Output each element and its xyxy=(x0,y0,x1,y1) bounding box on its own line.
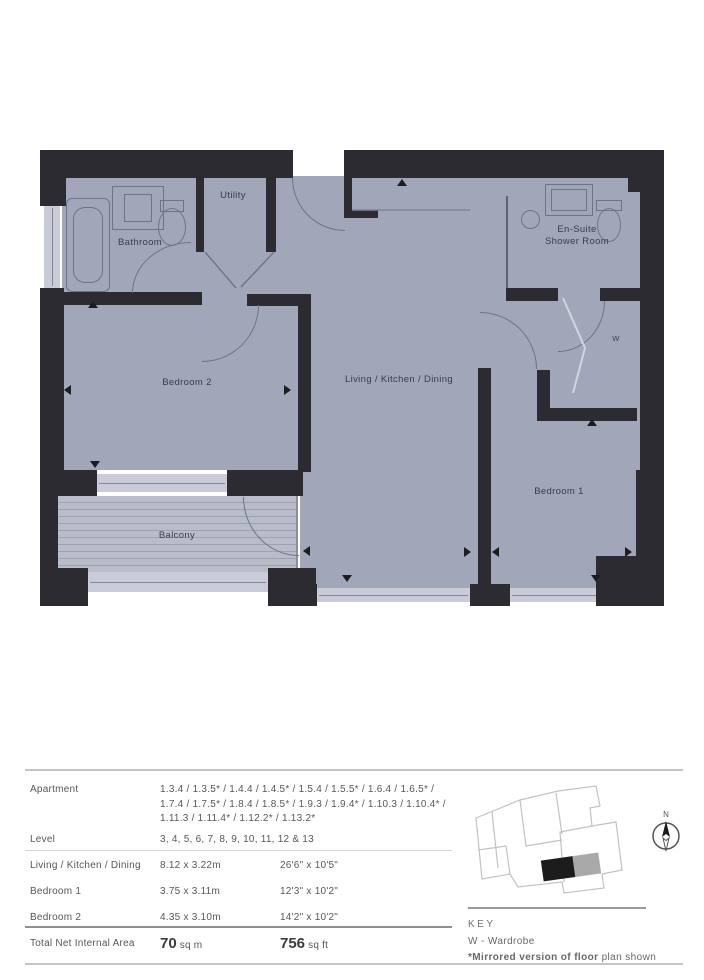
row-metric-bedroom1: 3.75 x 3.11m xyxy=(160,885,275,900)
dimension-arrow-icon xyxy=(397,179,407,186)
dimension-arrow-icon xyxy=(303,546,310,556)
room-label-utility: Utility xyxy=(220,190,246,202)
room-label-ensuite-2: Shower Room xyxy=(545,236,609,248)
row-label-apartment: Apartment xyxy=(30,783,155,798)
room-label-living: Living / Kitchen / Dining xyxy=(345,374,453,386)
dimension-arrow-icon xyxy=(464,547,471,557)
room-label-balcony: Balcony xyxy=(159,530,195,542)
total-label: Total Net Internal Area xyxy=(30,937,165,952)
wardrobe-doors-icon xyxy=(563,298,585,393)
row-metric-bedroom2: 4.35 x 3.10m xyxy=(160,911,275,926)
row-metric-living: 8.12 x 3.22m xyxy=(160,859,275,874)
dimension-arrow-icon xyxy=(625,547,632,557)
total-imperial-unit: sq ft xyxy=(308,940,328,951)
dimension-arrow-icon xyxy=(90,461,100,468)
row-label-bedroom1: Bedroom 1 xyxy=(30,885,155,900)
total-imperial: 756 sq ft xyxy=(280,933,430,955)
dimension-arrow-icon xyxy=(587,419,597,426)
key-wardrobe-entry: W - Wardrobe xyxy=(468,936,535,947)
row-value-apartment: 1.3.4 / 1.3.5* / 1.4.4 / 1.4.5* / 1.5.4 … xyxy=(160,783,450,827)
floorplan-page: Bathroom Utility Bedroom 2 Living / Kitc… xyxy=(0,0,704,980)
table-rule xyxy=(25,926,452,928)
row-label-level: Level xyxy=(30,833,155,848)
key-mirrored-note: *Mirrored version of floor plan shown xyxy=(468,952,656,963)
table-rule xyxy=(25,850,452,851)
table-top-rule xyxy=(25,769,683,771)
compass-north-label: N xyxy=(663,810,669,819)
dimension-arrow-icon xyxy=(342,575,352,582)
room-label-bathroom: Bathroom xyxy=(118,237,162,249)
key-divider xyxy=(468,907,646,909)
dimension-arrow-icon xyxy=(591,575,601,582)
row-value-level: 3, 4, 5, 6, 7, 8, 9, 10, 11, 12 & 13 xyxy=(160,833,450,848)
key-note-bold: *Mirrored version of floor xyxy=(468,952,598,963)
wardrobe-label: W xyxy=(612,334,619,344)
row-imperial-living: 26'6" x 10'5" xyxy=(280,859,430,874)
site-plan-minimap xyxy=(462,776,652,902)
row-label-bedroom2: Bedroom 2 xyxy=(30,911,155,926)
compass-icon: N xyxy=(648,808,684,856)
key-note-regular: plan shown xyxy=(598,952,656,963)
room-label-bedroom1: Bedroom 1 xyxy=(534,486,584,498)
dimension-arrow-icon xyxy=(284,385,291,395)
row-imperial-bedroom2: 14'2" x 10'2" xyxy=(280,911,430,926)
total-metric-value: 70 xyxy=(160,935,177,952)
adjacent-unit xyxy=(572,853,601,877)
total-metric-unit: sq m xyxy=(180,940,203,951)
dimension-arrow-icon xyxy=(64,385,71,395)
total-imperial-value: 756 xyxy=(280,935,305,952)
row-label-living: Living / Kitchen / Dining xyxy=(30,859,155,874)
room-label-bedroom2: Bedroom 2 xyxy=(162,377,212,389)
row-imperial-bedroom1: 12'3" x 10'2" xyxy=(280,885,430,900)
table-bottom-rule xyxy=(25,963,683,965)
key-title: KEY xyxy=(468,919,496,930)
dimension-arrow-icon xyxy=(492,547,499,557)
total-metric: 70 sq m xyxy=(160,933,275,955)
room-label-ensuite-1: En-Suite xyxy=(557,224,596,236)
dimension-arrow-icon xyxy=(88,301,98,308)
highlighted-unit xyxy=(541,856,576,881)
